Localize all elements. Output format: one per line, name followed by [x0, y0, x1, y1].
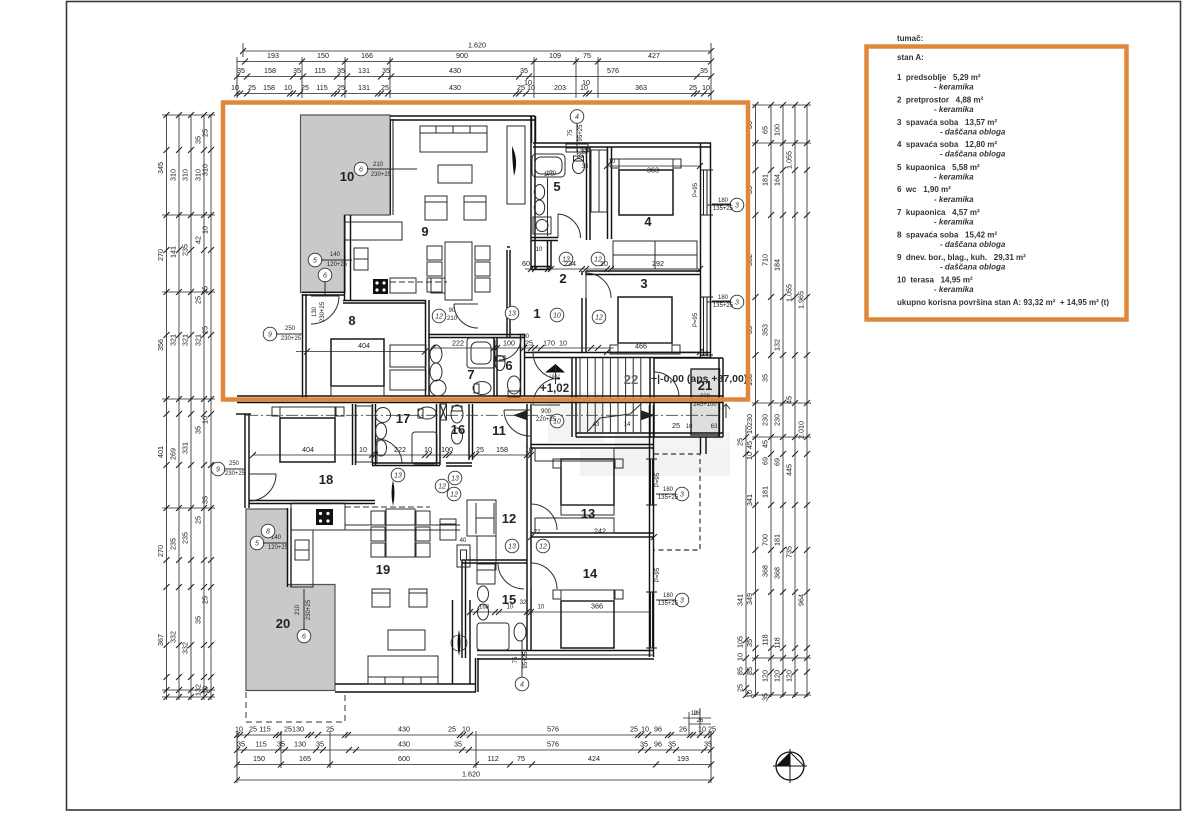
svg-text:- daščana obloga: - daščana obloga — [940, 240, 1006, 249]
svg-text:45: 45 — [761, 440, 770, 448]
svg-text:5 kupaonica 5,58 m²: 5 kupaonica 5,58 m² — [897, 163, 980, 172]
svg-text:1.965: 1.965 — [797, 291, 806, 309]
svg-text:25: 25 — [201, 596, 210, 604]
svg-text:100: 100 — [503, 339, 515, 348]
svg-text:3 spavaća soba 13,57 m²: 3 spavaća soba 13,57 m² — [897, 118, 997, 127]
svg-text:130: 130 — [294, 740, 306, 749]
svg-text:35: 35 — [520, 66, 528, 75]
svg-text:270: 270 — [156, 249, 165, 261]
svg-text:353: 353 — [761, 324, 770, 336]
svg-text:158: 158 — [263, 83, 275, 92]
svg-text:35: 35 — [194, 616, 203, 624]
svg-text:310: 310 — [169, 169, 178, 181]
svg-text:+|-0,00 (aps +87,00): +|-0,00 (aps +87,00) — [651, 373, 747, 385]
svg-text:401: 401 — [156, 446, 165, 458]
svg-text:35: 35 — [293, 66, 301, 75]
svg-text:135+25: 135+25 — [713, 206, 734, 212]
svg-text:25: 25 — [448, 725, 456, 734]
svg-text:242: 242 — [594, 527, 606, 536]
svg-text:18: 18 — [319, 472, 333, 487]
svg-text:10: 10 — [702, 83, 710, 92]
svg-text:75: 75 — [568, 129, 574, 136]
svg-text:9: 9 — [421, 224, 428, 239]
svg-text:1.055: 1.055 — [785, 284, 794, 302]
svg-text:tumač:: tumač: — [897, 34, 923, 43]
svg-text:10: 10 — [609, 159, 616, 165]
svg-text:35: 35 — [382, 66, 390, 75]
svg-text:292: 292 — [652, 259, 664, 268]
svg-text:10: 10 — [284, 83, 292, 92]
svg-text:10: 10 — [559, 339, 567, 348]
svg-text:10: 10 — [462, 725, 470, 734]
svg-text:35: 35 — [700, 66, 708, 75]
svg-text:- daščana obloga: - daščana obloga — [940, 150, 1006, 159]
svg-text:25: 25 — [736, 684, 745, 692]
svg-text:118: 118 — [761, 634, 770, 645]
svg-text:11: 11 — [492, 423, 506, 438]
svg-text:- keramika: - keramika — [934, 218, 974, 227]
svg-text:5: 5 — [313, 258, 317, 265]
svg-text:181: 181 — [761, 486, 770, 498]
svg-text:35: 35 — [316, 740, 324, 749]
svg-text:132: 132 — [773, 339, 782, 351]
svg-text:3: 3 — [640, 276, 647, 291]
svg-text:349: 349 — [745, 593, 754, 605]
svg-text:230: 230 — [773, 414, 782, 426]
svg-text:1.620: 1.620 — [462, 770, 480, 779]
svg-text:10: 10 — [525, 445, 533, 454]
svg-text:25: 25 — [702, 352, 709, 358]
svg-text:6 wc 1,90 m²: 6 wc 1,90 m² — [897, 185, 951, 194]
svg-text:5: 5 — [255, 541, 259, 548]
svg-text:60: 60 — [522, 259, 530, 268]
svg-text:576: 576 — [547, 725, 559, 734]
svg-text:234: 234 — [564, 259, 576, 268]
svg-text:12: 12 — [435, 314, 443, 321]
svg-text:115: 115 — [316, 83, 327, 92]
svg-text:10: 10 — [686, 424, 693, 430]
svg-text:170: 170 — [544, 172, 555, 178]
svg-text:269: 269 — [169, 448, 178, 460]
svg-text:130: 130 — [292, 725, 304, 734]
svg-text:368: 368 — [761, 565, 770, 577]
svg-text:100: 100 — [519, 334, 530, 340]
svg-text:245+100: 245+100 — [693, 402, 717, 408]
svg-text:P=95: P=95 — [655, 472, 661, 487]
svg-text:166: 166 — [361, 51, 373, 60]
svg-text:25: 25 — [284, 725, 292, 734]
svg-text:10: 10 — [745, 426, 754, 434]
svg-text:331: 331 — [181, 442, 190, 454]
svg-text:25: 25 — [708, 725, 716, 734]
svg-text:10: 10 — [553, 313, 561, 320]
svg-text:33: 33 — [582, 164, 589, 170]
svg-text:310: 310 — [181, 169, 190, 181]
svg-text:12: 12 — [595, 315, 603, 322]
svg-text:404: 404 — [302, 445, 314, 454]
svg-text:- keramika: - keramika — [934, 173, 974, 182]
svg-text:9: 9 — [268, 332, 272, 339]
svg-text:700: 700 — [761, 534, 770, 546]
svg-text:430: 430 — [398, 725, 410, 734]
svg-text:25: 25 — [248, 83, 256, 92]
svg-text:368: 368 — [773, 567, 782, 579]
svg-text:2: 2 — [559, 271, 566, 286]
svg-text:1 predsoblje 5,29 m²: 1 predsoblje 5,29 m² — [897, 73, 981, 82]
svg-text:404: 404 — [358, 341, 370, 350]
svg-text:230+25: 230+25 — [306, 599, 312, 620]
svg-text:210: 210 — [295, 604, 301, 615]
svg-text:321: 321 — [194, 334, 203, 346]
svg-text:10: 10 — [201, 226, 210, 234]
svg-text:363: 363 — [635, 83, 647, 92]
svg-text:141: 141 — [169, 246, 178, 258]
svg-text:35: 35 — [761, 693, 770, 701]
svg-text:33: 33 — [577, 154, 584, 160]
svg-text:95+25: 95+25 — [523, 651, 529, 669]
svg-text:69: 69 — [761, 457, 770, 465]
svg-text:25: 25 — [672, 421, 680, 430]
svg-text:180: 180 — [718, 198, 729, 204]
svg-text:35: 35 — [194, 426, 203, 434]
svg-text:35: 35 — [668, 740, 676, 749]
svg-text:10: 10 — [698, 725, 706, 734]
svg-text:13: 13 — [581, 506, 595, 521]
svg-text:- keramika: - keramika — [934, 285, 974, 294]
svg-text:430: 430 — [398, 740, 410, 749]
svg-text:115: 115 — [259, 725, 270, 734]
svg-text:10: 10 — [201, 416, 210, 424]
svg-text:2 pretprostor 4,88 m²: 2 pretprostor 4,88 m² — [897, 96, 984, 105]
svg-text:120: 120 — [773, 670, 782, 682]
svg-text:230+25: 230+25 — [371, 172, 392, 178]
svg-text:6: 6 — [323, 273, 327, 280]
svg-text:25: 25 — [194, 516, 203, 524]
svg-text:10: 10 — [538, 605, 545, 611]
svg-text:230+25: 230+25 — [225, 471, 246, 477]
svg-text:40: 40 — [460, 538, 467, 544]
svg-text:10: 10 — [524, 78, 532, 87]
svg-text:12: 12 — [502, 511, 516, 526]
svg-text:10: 10 — [745, 690, 754, 698]
svg-text:85: 85 — [745, 667, 754, 675]
svg-text:100: 100 — [773, 124, 782, 136]
svg-text:3: 3 — [680, 598, 684, 605]
svg-text:9: 9 — [216, 467, 220, 474]
svg-text:165: 165 — [299, 754, 311, 763]
svg-text:235: 235 — [169, 538, 178, 550]
svg-text:90: 90 — [449, 308, 456, 314]
svg-text:4 spavaća soba 12,80 m²: 4 spavaća soba 12,80 m² — [897, 140, 997, 149]
svg-text:100: 100 — [441, 445, 453, 454]
svg-text:230+25: 230+25 — [320, 301, 326, 322]
svg-text:35: 35 — [201, 496, 210, 504]
svg-text:168: 168 — [479, 605, 490, 611]
svg-text:- daščana obloga: - daščana obloga — [940, 263, 1006, 272]
svg-text:230: 230 — [761, 414, 770, 426]
svg-text:120+25: 120+25 — [327, 262, 348, 268]
svg-text:3: 3 — [735, 203, 739, 210]
svg-text:10: 10 — [600, 259, 608, 268]
svg-text:45: 45 — [745, 441, 754, 449]
svg-text:964: 964 — [797, 594, 806, 606]
svg-text:366: 366 — [591, 602, 603, 611]
svg-text:6: 6 — [359, 167, 363, 174]
svg-text:735: 735 — [785, 546, 794, 558]
svg-text:203: 203 — [554, 83, 566, 92]
svg-text:4: 4 — [520, 682, 524, 689]
svg-text:- daščana obloga: - daščana obloga — [940, 128, 1006, 137]
svg-text:35: 35 — [761, 374, 770, 382]
svg-text:25: 25 — [337, 83, 345, 92]
svg-text:13: 13 — [508, 544, 516, 551]
svg-text:131: 131 — [358, 66, 370, 75]
svg-text:180: 180 — [663, 487, 674, 493]
svg-text:P=95: P=95 — [693, 312, 699, 327]
svg-text:230+25: 230+25 — [281, 336, 302, 342]
svg-text:170: 170 — [543, 339, 555, 348]
svg-text:75: 75 — [513, 656, 519, 663]
svg-text:25: 25 — [381, 83, 389, 92]
svg-text:158: 158 — [496, 445, 508, 454]
svg-text:222: 222 — [452, 339, 464, 348]
svg-text:22: 22 — [624, 372, 638, 387]
svg-text:4: 4 — [644, 214, 652, 229]
svg-text:75: 75 — [517, 754, 525, 763]
svg-text:22: 22 — [534, 530, 541, 536]
svg-text:- keramika: - keramika — [934, 195, 974, 204]
svg-text:105: 105 — [736, 636, 745, 648]
svg-text:8: 8 — [266, 529, 270, 536]
svg-text:95+25: 95+25 — [578, 124, 584, 142]
svg-text:14: 14 — [583, 566, 598, 581]
svg-text:193: 193 — [677, 754, 689, 763]
svg-text:10 terasa 14,95 m²: 10 terasa 14,95 m² — [897, 276, 973, 285]
svg-text:12: 12 — [450, 492, 458, 499]
svg-text:118: 118 — [773, 637, 782, 648]
svg-text:96: 96 — [654, 725, 662, 734]
svg-text:135+25: 135+25 — [713, 303, 734, 309]
svg-text:65: 65 — [761, 126, 770, 134]
svg-text:19: 19 — [376, 562, 390, 577]
svg-text:P=95: P=95 — [693, 182, 699, 197]
svg-text:184: 184 — [773, 259, 782, 271]
svg-text:900: 900 — [456, 51, 468, 60]
svg-text:332: 332 — [169, 631, 178, 643]
svg-text:270: 270 — [156, 545, 165, 557]
svg-text:35: 35 — [745, 639, 754, 647]
svg-text:6: 6 — [505, 358, 512, 373]
svg-text:35: 35 — [237, 740, 245, 749]
svg-text:42: 42 — [194, 236, 203, 244]
svg-text:10: 10 — [691, 711, 698, 717]
svg-text:445: 445 — [785, 464, 794, 476]
svg-text:43: 43 — [593, 422, 600, 428]
svg-text:180: 180 — [718, 295, 729, 301]
svg-text:8 spavaća soba 15,42 m²: 8 spavaća soba 15,42 m² — [897, 231, 997, 240]
svg-text:180: 180 — [663, 593, 674, 599]
svg-text:10: 10 — [424, 445, 432, 454]
svg-text:345: 345 — [156, 162, 165, 174]
svg-text:25: 25 — [201, 129, 210, 137]
svg-text:13: 13 — [394, 473, 402, 480]
svg-text:10: 10 — [582, 78, 590, 87]
svg-text:26: 26 — [679, 725, 687, 734]
svg-text:600: 600 — [398, 754, 410, 763]
svg-text:17: 17 — [396, 411, 410, 426]
svg-text:181: 181 — [773, 534, 782, 546]
svg-text:164: 164 — [773, 174, 782, 186]
svg-text:120: 120 — [785, 670, 794, 682]
svg-text:466: 466 — [635, 342, 647, 351]
svg-text:25: 25 — [630, 725, 638, 734]
svg-text:10: 10 — [235, 725, 243, 734]
svg-text:13: 13 — [451, 476, 459, 483]
svg-text:112: 112 — [487, 754, 498, 763]
svg-text:193: 193 — [267, 51, 279, 60]
svg-text:341: 341 — [745, 494, 754, 506]
svg-text:10: 10 — [736, 653, 745, 661]
svg-text:115: 115 — [255, 740, 266, 749]
svg-text:150: 150 — [253, 754, 265, 763]
svg-text:1.055: 1.055 — [785, 151, 794, 169]
svg-text:16: 16 — [451, 422, 465, 437]
svg-text:576: 576 — [547, 740, 559, 749]
svg-text:25: 25 — [736, 438, 745, 446]
svg-text:10: 10 — [745, 452, 754, 460]
svg-text:12: 12 — [438, 484, 446, 491]
svg-text:427: 427 — [648, 51, 660, 60]
svg-text:25: 25 — [194, 296, 203, 304]
svg-text:85: 85 — [736, 667, 745, 675]
svg-text:- keramika: - keramika — [934, 105, 974, 114]
svg-text:75: 75 — [583, 51, 591, 60]
svg-text:35: 35 — [237, 66, 245, 75]
svg-text:150: 150 — [317, 51, 329, 60]
svg-text:3: 3 — [680, 492, 684, 499]
svg-text:130: 130 — [312, 306, 318, 317]
svg-text:576: 576 — [607, 66, 619, 75]
svg-text:35: 35 — [201, 286, 210, 294]
svg-text:7: 7 — [467, 367, 474, 382]
svg-text:158: 158 — [264, 66, 276, 75]
svg-text:15: 15 — [502, 592, 516, 607]
svg-text:321: 321 — [181, 334, 190, 346]
svg-text:356: 356 — [156, 339, 165, 351]
svg-text:135+25: 135+25 — [658, 495, 679, 501]
svg-text:P=95: P=95 — [655, 567, 661, 582]
svg-text:109: 109 — [549, 51, 561, 60]
svg-text:12: 12 — [539, 544, 547, 551]
svg-text:250: 250 — [285, 326, 296, 332]
svg-text:181: 181 — [761, 174, 770, 186]
svg-text:3: 3 — [735, 300, 739, 307]
svg-text:367: 367 — [156, 634, 165, 646]
svg-text:321: 321 — [169, 334, 178, 346]
svg-text:10: 10 — [536, 247, 543, 253]
svg-text:ukupno korisna površina stan A: ukupno korisna površina stan A: 93,32 m²… — [897, 298, 1109, 307]
svg-text:stan A:: stan A: — [897, 53, 924, 62]
svg-text:96: 96 — [654, 740, 662, 749]
svg-text:430: 430 — [449, 83, 461, 92]
svg-text:10: 10 — [231, 83, 239, 92]
svg-text:363: 363 — [647, 166, 659, 175]
svg-text:210: 210 — [447, 316, 458, 322]
svg-text:235: 235 — [181, 532, 190, 544]
svg-text:220+25: 220+25 — [536, 417, 557, 423]
svg-text:63: 63 — [711, 424, 718, 430]
svg-text:710: 710 — [761, 254, 770, 266]
svg-text:310: 310 — [201, 164, 210, 176]
svg-text:10: 10 — [359, 445, 367, 454]
svg-text:25: 25 — [689, 83, 697, 92]
svg-text:131: 131 — [358, 83, 370, 92]
svg-text:5: 5 — [553, 179, 560, 194]
svg-text:32: 32 — [520, 600, 527, 606]
svg-text:135+25: 135+25 — [658, 601, 679, 607]
svg-text:14: 14 — [624, 422, 631, 428]
svg-text:1: 1 — [533, 306, 540, 321]
svg-text:115: 115 — [314, 66, 325, 75]
svg-text:6: 6 — [302, 634, 306, 641]
svg-text:332: 332 — [181, 642, 190, 654]
svg-text:341: 341 — [736, 594, 745, 606]
svg-text:900: 900 — [541, 409, 552, 415]
svg-text:235: 235 — [181, 244, 190, 256]
svg-text:230: 230 — [745, 414, 754, 426]
svg-text:35: 35 — [454, 740, 462, 749]
svg-text:140: 140 — [330, 252, 341, 258]
svg-text:430: 430 — [449, 66, 461, 75]
svg-text:20: 20 — [276, 616, 290, 631]
svg-text:210: 210 — [373, 162, 384, 168]
svg-text:+1,02: +1,02 — [540, 383, 569, 395]
svg-text:9 dnev. bor., blag., kuh. 2: 9 dnev. bor., blag., kuh. 29,31 m² — [897, 253, 1026, 262]
svg-text:2.010: 2.010 — [797, 421, 806, 439]
svg-text:222: 222 — [394, 445, 406, 454]
svg-text:1.620: 1.620 — [468, 41, 486, 50]
svg-text:10: 10 — [340, 169, 354, 184]
svg-text:7 kupaonica 4,57 m²: 7 kupaonica 4,57 m² — [897, 208, 980, 217]
svg-text:4: 4 — [575, 114, 579, 121]
svg-text:25: 25 — [476, 445, 484, 454]
svg-text:8: 8 — [348, 313, 355, 328]
svg-text:25: 25 — [249, 725, 257, 734]
svg-text:35: 35 — [337, 66, 345, 75]
svg-text:10: 10 — [641, 725, 649, 734]
svg-text:- keramika: - keramika — [934, 83, 974, 92]
svg-text:25: 25 — [201, 326, 210, 334]
svg-text:120+25: 120+25 — [268, 545, 289, 551]
svg-text:13: 13 — [508, 311, 516, 318]
svg-text:250: 250 — [229, 461, 240, 467]
svg-text:424: 424 — [588, 754, 600, 763]
svg-text:69: 69 — [773, 458, 782, 466]
svg-text:120: 120 — [761, 670, 770, 682]
svg-text:35: 35 — [640, 740, 648, 749]
